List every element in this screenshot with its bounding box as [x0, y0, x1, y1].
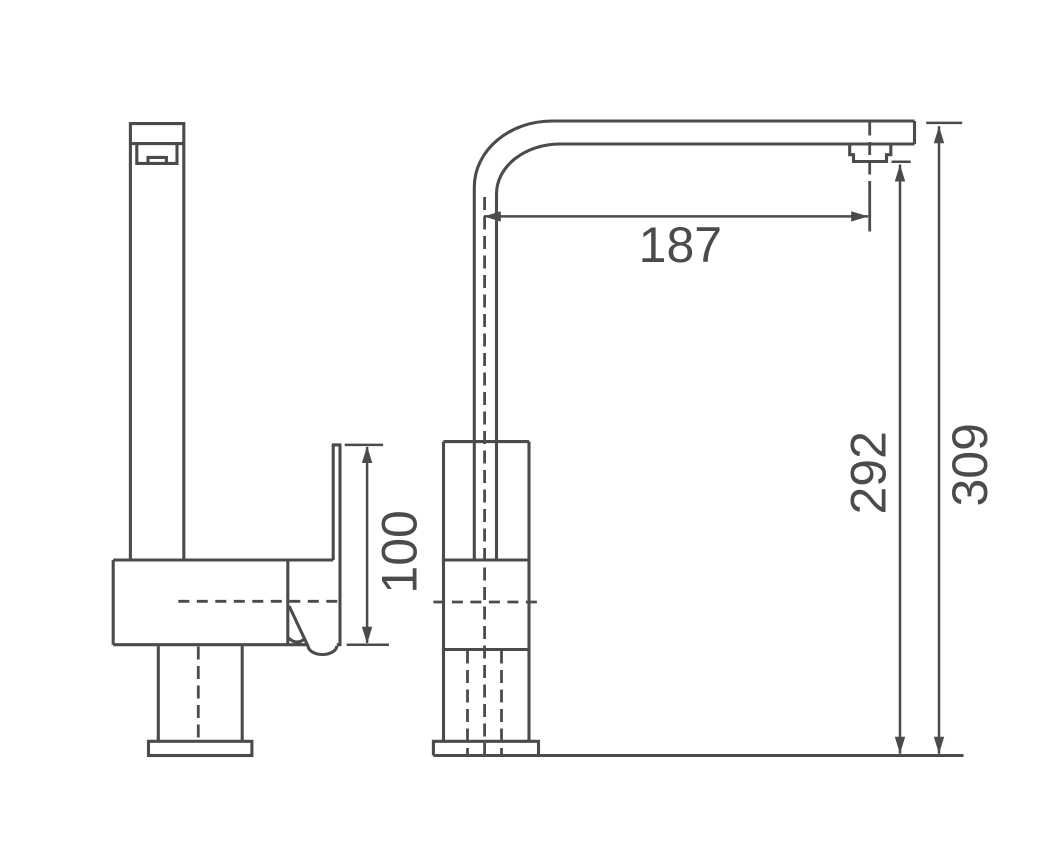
svg-text:100: 100: [371, 510, 427, 593]
svg-text:292: 292: [840, 431, 896, 514]
svg-text:187: 187: [639, 217, 722, 273]
svg-text:309: 309: [942, 423, 998, 506]
